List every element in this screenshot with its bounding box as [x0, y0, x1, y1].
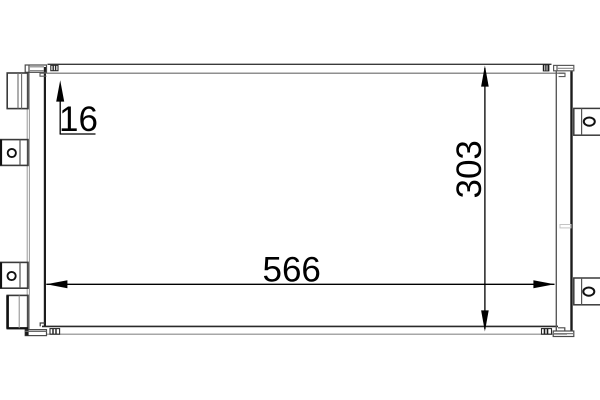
svg-text:303: 303 — [450, 140, 489, 198]
svg-text:16: 16 — [59, 100, 98, 139]
svg-text:566: 566 — [263, 251, 321, 290]
